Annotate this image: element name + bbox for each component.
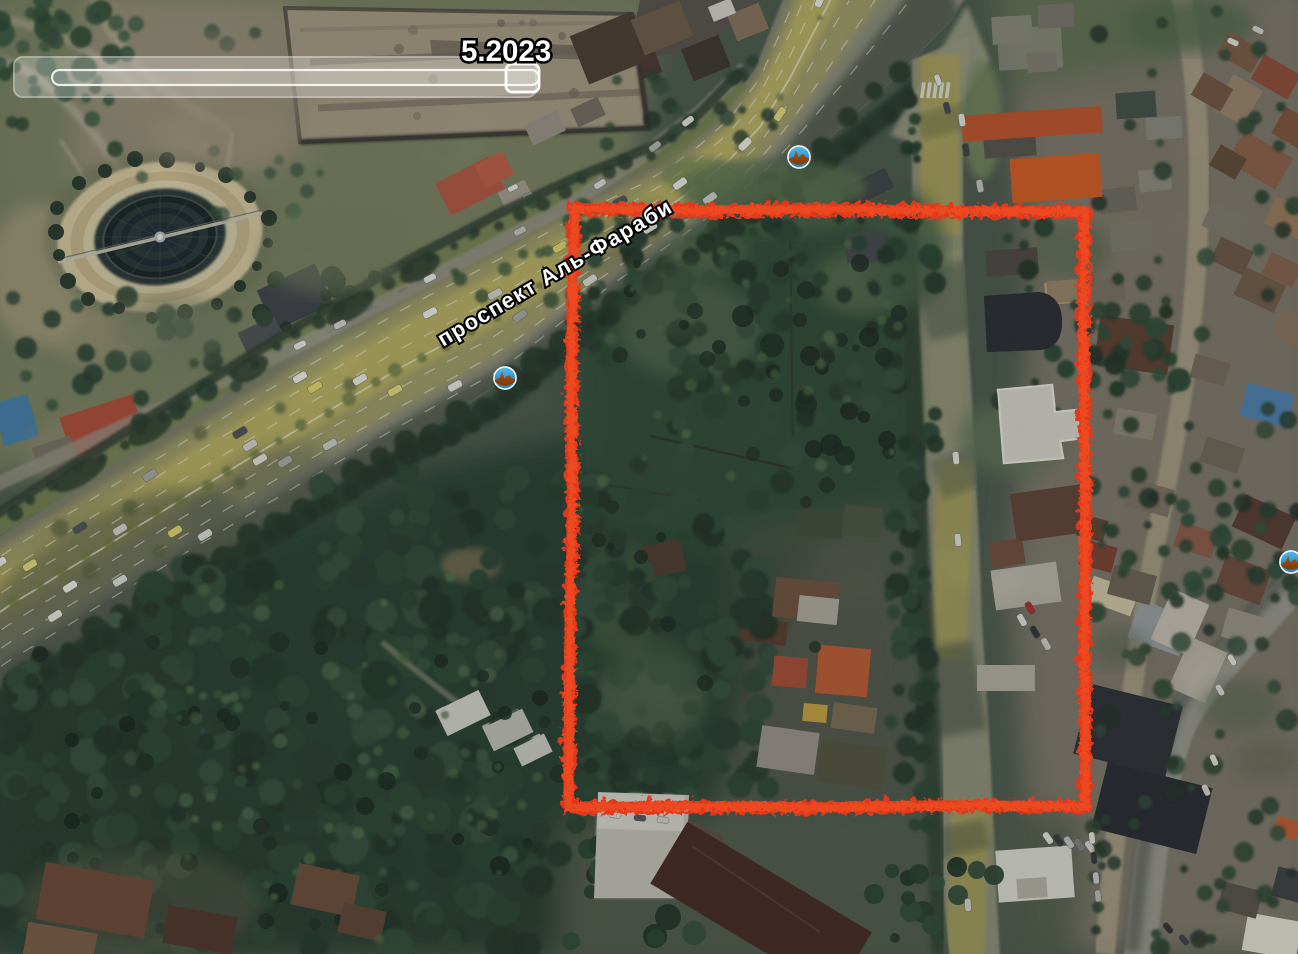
svg-text:5.2023: 5.2023 — [461, 35, 551, 68]
